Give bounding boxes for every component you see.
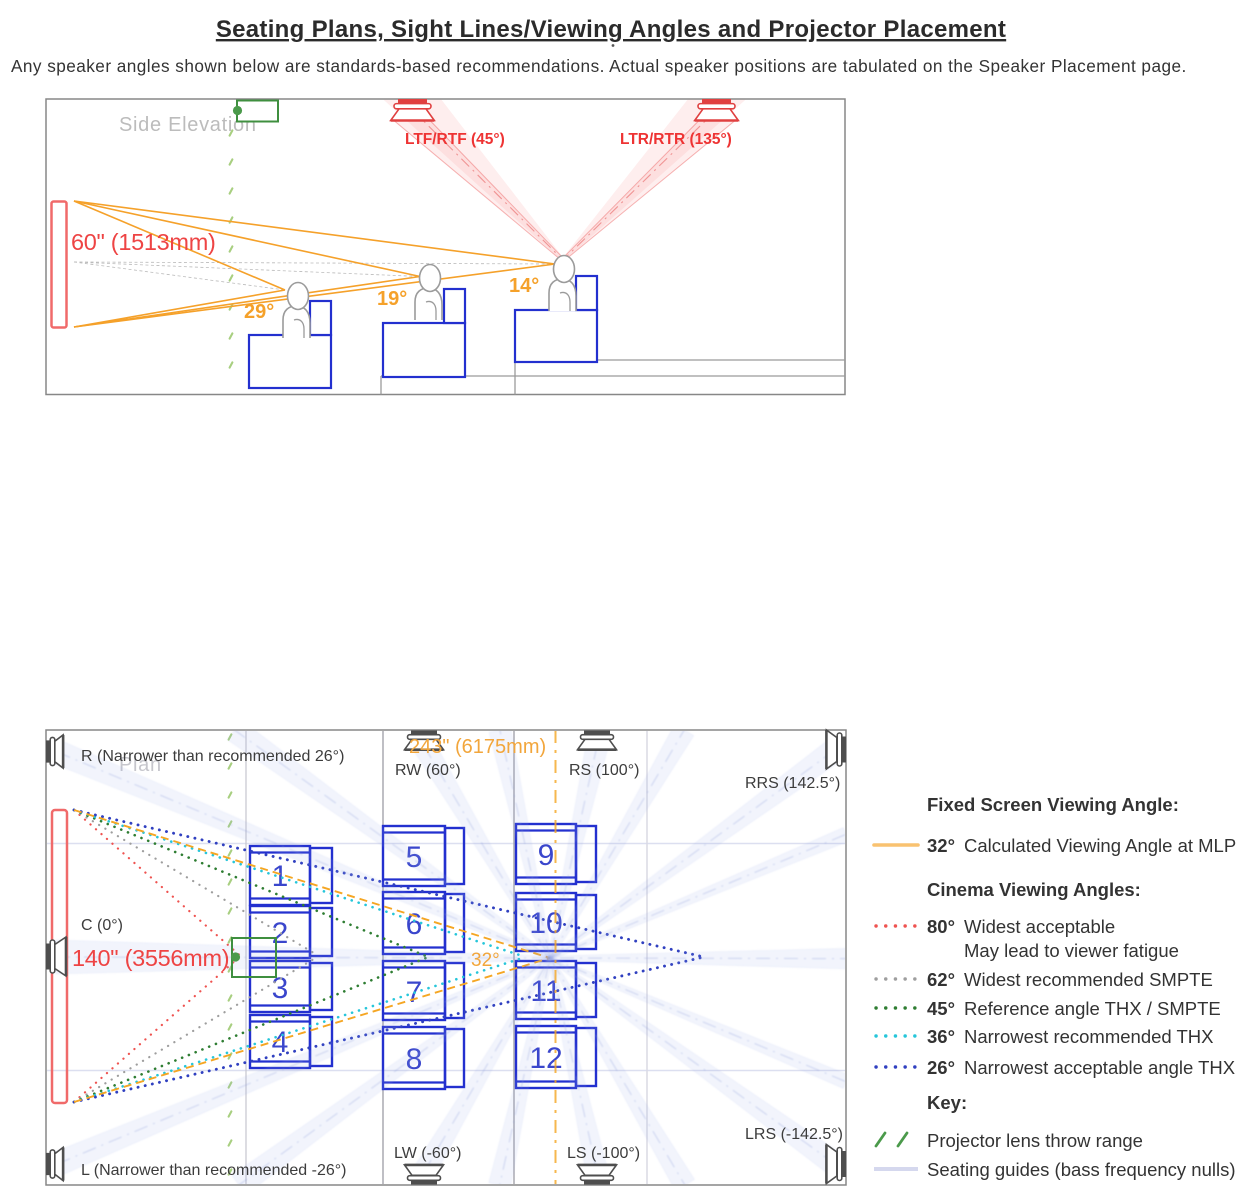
svg-text:Widest recommended SMPTE: Widest recommended SMPTE — [964, 969, 1213, 990]
svg-text:LW (-60°): LW (-60°) — [394, 1145, 461, 1162]
svg-text:Narrowest acceptable angle THX: Narrowest acceptable angle THX — [964, 1057, 1235, 1078]
svg-text:26°: 26° — [927, 1057, 955, 1078]
svg-text:Projector lens throw range: Projector lens throw range — [927, 1130, 1143, 1151]
svg-text:36°: 36° — [927, 1026, 955, 1047]
svg-text:19°: 19° — [377, 288, 407, 310]
svg-text:Narrowest recommended THX: Narrowest recommended THX — [964, 1026, 1214, 1047]
svg-text:80°: 80° — [927, 916, 955, 937]
svg-text:C (0°): C (0°) — [81, 917, 123, 934]
svg-text:RRS (142.5°): RRS (142.5°) — [745, 775, 840, 792]
svg-text:6: 6 — [406, 908, 423, 941]
svg-text:140" (3556mm): 140" (3556mm) — [72, 945, 229, 971]
svg-text:243" (6175mm): 243" (6175mm) — [409, 736, 546, 758]
svg-text:R (Narrower than recommended 2: R (Narrower than recommended 26°) — [81, 748, 344, 765]
svg-text:Cinema Viewing Angles:: Cinema Viewing Angles: — [927, 879, 1141, 900]
svg-text:L (Narrower than recommended -: L (Narrower than recommended -26°) — [81, 1162, 346, 1179]
svg-text:Widest acceptable: Widest acceptable — [964, 916, 1115, 937]
svg-text:32°: 32° — [927, 835, 955, 856]
svg-text:RW (60°): RW (60°) — [395, 762, 461, 779]
svg-text:RS (100°): RS (100°) — [569, 762, 639, 779]
svg-text:Reference angle THX / SMPTE: Reference angle THX / SMPTE — [964, 998, 1221, 1019]
svg-text:62°: 62° — [927, 969, 955, 990]
svg-text:Key:: Key: — [927, 1092, 967, 1113]
svg-text:Calculated Viewing Angle at ML: Calculated Viewing Angle at MLP — [964, 835, 1236, 856]
svg-text:Seating guides (bass frequency: Seating guides (bass frequency nulls) — [927, 1159, 1236, 1180]
svg-text:LTF/RTF (45°): LTF/RTF (45°) — [405, 131, 505, 148]
svg-text:Any speaker angles shown below: Any speaker angles shown below are stand… — [11, 56, 1187, 76]
svg-text:LRS (-142.5°): LRS (-142.5°) — [745, 1126, 843, 1143]
svg-text:14°: 14° — [509, 275, 539, 297]
svg-text:29°: 29° — [244, 301, 274, 323]
svg-text:May lead to viewer fatigue: May lead to viewer fatigue — [964, 940, 1179, 961]
svg-text:Fixed Screen Viewing Angle:: Fixed Screen Viewing Angle: — [927, 794, 1179, 815]
svg-text:45°: 45° — [927, 998, 955, 1019]
svg-text:32°: 32° — [471, 950, 500, 971]
svg-text:LS (-100°): LS (-100°) — [567, 1145, 640, 1162]
svg-text:Seating Plans, Sight Lines/Vie: Seating Plans, Sight Lines/Viewing Angle… — [216, 16, 1006, 43]
svg-text:60" (1513mm): 60" (1513mm) — [71, 229, 216, 255]
svg-text:9: 9 — [538, 839, 555, 872]
svg-text:LTR/RTR (135°): LTR/RTR (135°) — [620, 131, 732, 148]
